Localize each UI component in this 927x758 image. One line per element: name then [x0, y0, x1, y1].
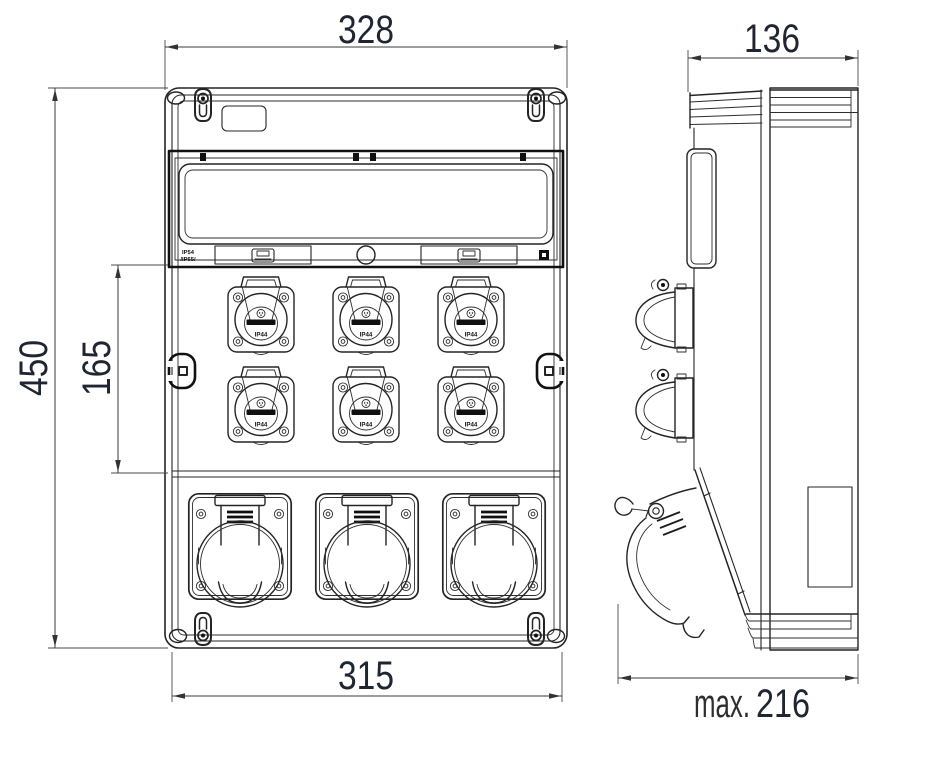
schuko-socket [333, 277, 399, 355]
dimension-label-front-height: 450 [12, 340, 56, 396]
side-base [770, 88, 858, 650]
dimension-label-mounting-width: 315 [338, 654, 394, 698]
dimension-label-schuko-field-height: 165 [75, 340, 119, 396]
window-center-hole [357, 246, 375, 264]
side-window-cover [687, 149, 716, 268]
enclosure-body [165, 88, 567, 648]
side-top-band [690, 90, 858, 128]
schuko-socket [228, 367, 294, 445]
technical-drawing-page: IP44 [0, 0, 927, 758]
schuko-socket [438, 277, 504, 355]
back-recess [808, 487, 852, 587]
window-rating-bottom: /IP65/ [180, 257, 196, 263]
schuko-socket-side [636, 280, 693, 353]
front-view: IP54 /IP65/ [165, 88, 567, 648]
dimension-max-depth: max. 216 [618, 604, 858, 726]
schuko-socket [438, 367, 504, 445]
cee-socket [316, 494, 418, 607]
window-clip [520, 153, 526, 161]
side-view [615, 88, 858, 650]
dimension-schuko-field-height: 165 [75, 265, 168, 473]
dimension-mounting-width: 315 [172, 652, 562, 702]
breaker-window: IP54 /IP65/ [169, 151, 563, 267]
cee-socket [189, 494, 291, 607]
cee-socket [443, 494, 545, 607]
cee-socket-side [615, 488, 744, 637]
schuko-socket [333, 367, 399, 445]
mounting-hole [168, 92, 185, 104]
window-clip [200, 153, 206, 161]
schuko-socket [228, 277, 294, 355]
dimension-label-max-depth: 216 [756, 682, 810, 726]
dimension-side-width: 136 [688, 17, 858, 92]
window-rating-top: IP54 [182, 250, 195, 256]
label-plate [222, 106, 266, 131]
mounting-hole [548, 630, 565, 643]
window-clip [353, 153, 359, 161]
dimension-label-max-prefix: max. [694, 682, 750, 726]
schuko-socket-side [636, 370, 693, 443]
dimension-label-side-width: 136 [744, 17, 800, 61]
dimension-front-width: 328 [165, 8, 567, 90]
window-clip [370, 153, 376, 161]
window-rating: IP54 /IP65/ [180, 250, 196, 263]
cee-socket-field [189, 494, 545, 607]
distribution-box-drawing: IP44 [0, 0, 927, 758]
schuko-socket-field [228, 277, 504, 445]
dimension-label-front-width: 328 [338, 8, 394, 52]
